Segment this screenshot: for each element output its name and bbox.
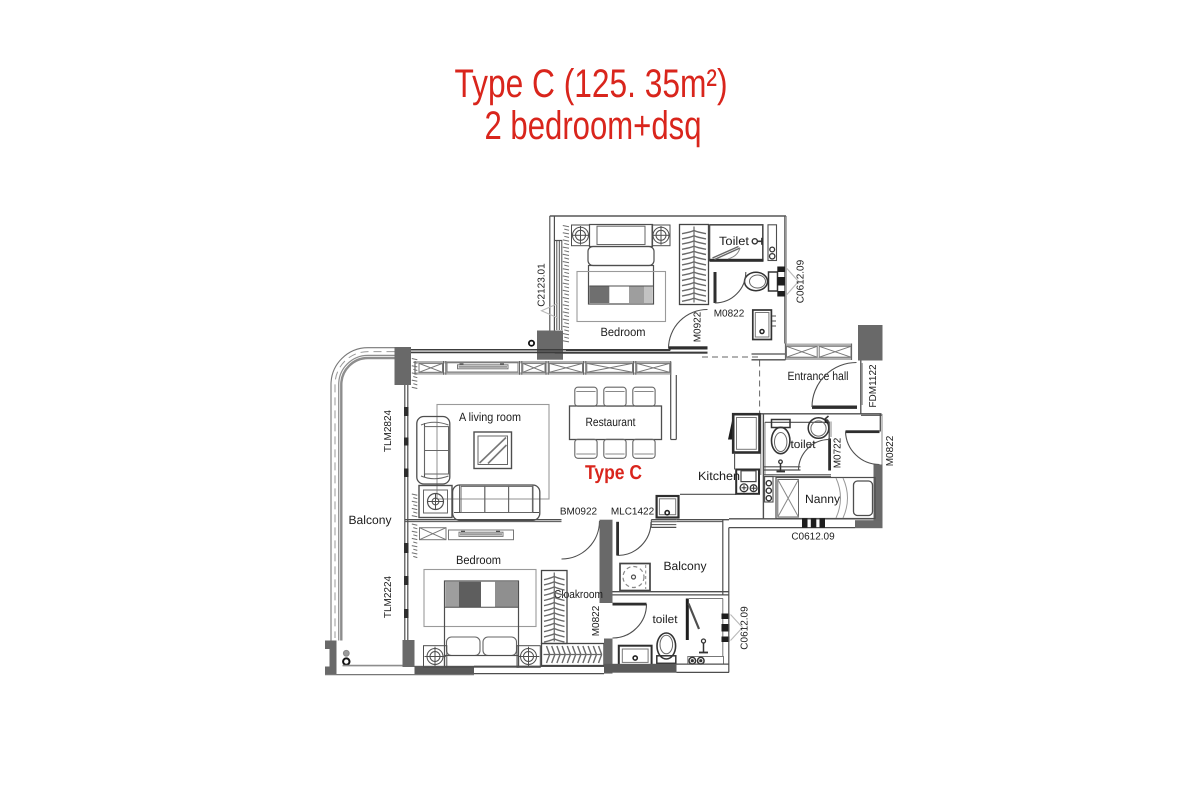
- svg-text:Bedroom: Bedroom: [601, 325, 646, 339]
- svg-text:C0612.09: C0612.09: [791, 532, 835, 543]
- svg-text:MLC1422: MLC1422: [611, 506, 655, 517]
- svg-text:2 bedroom+dsq: 2 bedroom+dsq: [485, 104, 702, 148]
- svg-text:Restaurant: Restaurant: [586, 415, 637, 429]
- svg-text:Balcony: Balcony: [349, 513, 392, 527]
- svg-text:Bedroom: Bedroom: [456, 553, 501, 567]
- svg-text:M0822: M0822: [714, 309, 745, 320]
- svg-text:Balcony: Balcony: [664, 559, 707, 573]
- svg-text:M0822: M0822: [885, 435, 896, 466]
- svg-text:M0722: M0722: [833, 437, 844, 468]
- svg-text:BM0922: BM0922: [560, 506, 598, 517]
- svg-text:Kitchen: Kitchen: [698, 469, 740, 483]
- svg-text:Entrance hall: Entrance hall: [788, 369, 849, 383]
- svg-text:C2123.01: C2123.01: [537, 263, 548, 307]
- svg-text:M0922: M0922: [693, 311, 704, 342]
- svg-text:Type C: Type C: [585, 462, 642, 484]
- svg-text:FDM1122: FDM1122: [868, 364, 879, 408]
- svg-text:C0612.09: C0612.09: [740, 606, 751, 650]
- svg-text:M0822: M0822: [591, 605, 602, 636]
- svg-text:Type C (125. 35m²): Type C (125. 35m²): [455, 62, 728, 106]
- svg-text:C0612.09: C0612.09: [796, 259, 807, 303]
- svg-text:TLM2824: TLM2824: [383, 409, 394, 452]
- svg-text:Toilet: Toilet: [719, 234, 750, 248]
- svg-text:TLM2224: TLM2224: [383, 575, 394, 618]
- svg-text:A living room: A living room: [459, 410, 521, 424]
- svg-text:toilet: toilet: [653, 614, 679, 626]
- svg-text:Nanny: Nanny: [805, 492, 840, 506]
